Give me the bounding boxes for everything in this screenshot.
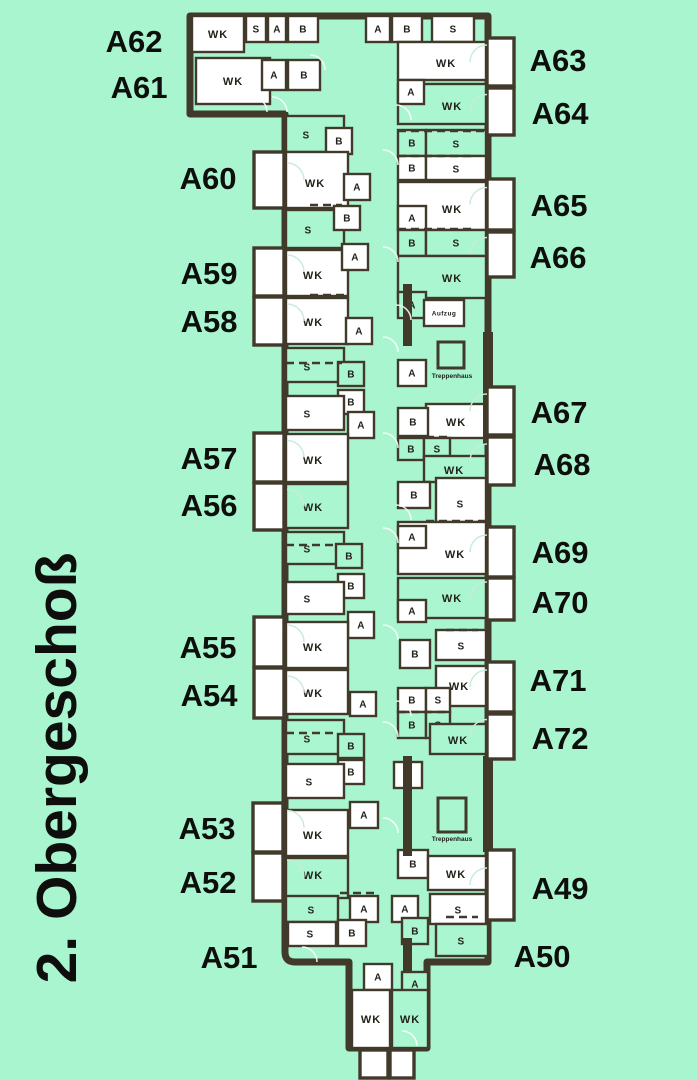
balcony	[254, 152, 284, 208]
apartment-label-a72: A72	[532, 721, 589, 756]
apartment-label-a50: A50	[514, 939, 571, 974]
apartment-label-a71: A71	[530, 663, 587, 698]
room-label-b: B	[347, 768, 355, 779]
balcony	[487, 38, 514, 86]
balcony	[487, 437, 514, 485]
room-label-wk: WK	[442, 204, 462, 216]
room-label-b: B	[410, 491, 418, 502]
apartment-label-a49: A49	[532, 871, 589, 906]
room-label-s: S	[452, 140, 459, 151]
room-s	[286, 348, 344, 382]
room-label-wk: WK	[446, 869, 466, 881]
apartment-label-a57: A57	[181, 441, 238, 476]
apartment-label-a54: A54	[181, 678, 239, 713]
room-label-s: S	[456, 500, 463, 511]
balcony	[253, 853, 283, 901]
room-label-b: B	[347, 370, 355, 381]
apartment-label-a64: A64	[532, 96, 590, 131]
room-label-a: A	[401, 905, 409, 916]
room-label-s: S	[454, 906, 461, 917]
room-label-a: A	[357, 421, 365, 432]
room-label-a: A	[351, 253, 359, 264]
room-label-s: S	[452, 165, 459, 176]
room-s	[286, 582, 344, 614]
room-label-wk: WK	[303, 870, 323, 882]
balcony	[254, 248, 284, 296]
balcony	[487, 232, 514, 277]
room-label-s: S	[457, 937, 464, 948]
room-label-b: B	[409, 860, 417, 871]
room-label-b: B	[300, 71, 308, 82]
room-label-b: B	[408, 721, 416, 732]
balcony	[487, 387, 514, 435]
room-label-s: S	[307, 906, 314, 917]
room-label-wk: WK	[446, 417, 466, 429]
room-label-b: B	[347, 398, 355, 409]
room-label-wk: WK	[303, 642, 323, 654]
room-label-b: B	[403, 25, 411, 36]
apartment-label-a59: A59	[181, 256, 238, 291]
room-label-a: A	[407, 88, 415, 99]
room-label-wk: WK	[303, 830, 323, 842]
room-label-a: A	[374, 25, 382, 36]
room-label-treppenhaus: Treppenhaus	[432, 373, 473, 380]
room-label-s: S	[452, 239, 459, 250]
apartment-label-a58: A58	[181, 304, 238, 339]
room-label-b: B	[411, 927, 419, 938]
floorplan-canvas: WKSABWKABABSWKWKABSBSWKABSWKAAufzugAWKBB…	[0, 0, 697, 1080]
room-label-s: S	[305, 778, 312, 789]
room-label-a: A	[353, 183, 361, 194]
balcony	[390, 1050, 414, 1078]
room-label-a: A	[273, 25, 281, 36]
room-label-a: A	[408, 607, 416, 618]
stairwell-shaft	[438, 342, 464, 368]
room-label-s: S	[304, 226, 311, 237]
room-label-aufzug: Aufzug	[432, 310, 456, 317]
apartment-label-a69: A69	[532, 535, 589, 570]
stairwell-shaft	[438, 798, 466, 832]
balcony	[254, 617, 284, 667]
room-label-s: S	[302, 131, 309, 142]
apartment-label-a56: A56	[181, 488, 238, 523]
balcony	[254, 668, 284, 718]
balcony	[360, 1050, 388, 1078]
wall-segment	[403, 938, 412, 972]
apartment-label-a62: A62	[106, 24, 163, 59]
room-label-b: B	[411, 650, 419, 661]
room-label-wk: WK	[444, 465, 464, 477]
balcony	[253, 803, 283, 852]
room-label-b: B	[345, 552, 353, 563]
room-label-wk: WK	[305, 178, 325, 190]
room-label-b: B	[299, 25, 307, 36]
apartment-label-a65: A65	[531, 188, 588, 223]
room-label-wk: WK	[303, 688, 323, 700]
room-label-b: B	[347, 742, 355, 753]
room-label-s: S	[457, 642, 464, 653]
wall-segment	[483, 756, 493, 852]
room-label-s: S	[306, 930, 313, 941]
room-label-s: S	[303, 363, 310, 374]
balcony	[487, 527, 514, 577]
room-label-a: A	[408, 533, 416, 544]
room-label-s: S	[303, 545, 310, 556]
balcony	[487, 578, 514, 620]
room-label-b: B	[348, 929, 356, 940]
room-label-wk: WK	[303, 317, 323, 329]
wall-segment	[403, 756, 412, 856]
apartment-label-a68: A68	[534, 447, 591, 482]
floor-title: 2. Obergeschoß	[25, 553, 89, 984]
balcony	[254, 483, 284, 530]
room-label-s: S	[303, 735, 310, 746]
room-label-s: S	[303, 410, 310, 421]
room-label-s: S	[449, 25, 456, 36]
room-label-a: A	[355, 327, 363, 338]
apartment-label-a63: A63	[530, 43, 587, 78]
apartment-label-a51: A51	[201, 940, 258, 975]
room-label-a: A	[374, 973, 382, 984]
room-label-wk: WK	[445, 549, 465, 561]
room-label-s: S	[252, 25, 259, 36]
balcony	[254, 433, 284, 482]
room-label-wk: WK	[303, 502, 323, 514]
floorplan-svg: WKSABWKABABSWKWKABSBSWKABSWKAAufzugAWKBB…	[0, 0, 697, 1080]
balcony	[487, 662, 514, 712]
room-label-wk: WK	[361, 1014, 381, 1026]
room-label-b: B	[408, 239, 416, 250]
balcony	[254, 297, 284, 345]
room-label-wk: WK	[400, 1014, 420, 1026]
room-label-treppenhaus: Treppenhaus	[432, 836, 473, 843]
room-label-a: A	[270, 71, 278, 82]
apartment-label-a53: A53	[179, 811, 236, 846]
apartment-label-a66: A66	[530, 240, 587, 275]
room-label-s: S	[434, 696, 441, 707]
room-label-b: B	[335, 137, 343, 148]
room-label-wk: WK	[436, 58, 456, 70]
room-label-wk: WK	[223, 76, 243, 88]
room-label-wk: WK	[208, 29, 228, 41]
room-label-s: S	[433, 445, 440, 456]
balcony	[487, 179, 514, 230]
room-label-a: A	[408, 369, 416, 380]
room-label-b: B	[408, 164, 416, 175]
room-label-a: A	[357, 621, 365, 632]
room-label-b: B	[408, 139, 416, 150]
room-label-wk: WK	[303, 455, 323, 467]
room-label-a: A	[408, 214, 416, 225]
apartment-label-a60: A60	[180, 161, 237, 196]
room-label-wk: WK	[303, 270, 323, 282]
room-label-b: B	[347, 582, 355, 593]
room-label-wk: WK	[442, 593, 462, 605]
room-label-a: A	[359, 700, 367, 711]
room-s	[286, 764, 344, 798]
apartment-label-a70: A70	[532, 585, 589, 620]
room-label-wk: WK	[442, 273, 462, 285]
room-label-wk: WK	[442, 101, 462, 113]
room-label-wk: WK	[448, 735, 468, 747]
apartment-label-a61: A61	[111, 70, 168, 105]
room-label-a: A	[360, 905, 368, 916]
room-label-a: A	[360, 811, 368, 822]
room-label-wk: WK	[449, 681, 469, 693]
room-label-b: B	[343, 214, 351, 225]
apartment-label-a55: A55	[180, 630, 237, 665]
room-label-s: S	[303, 595, 310, 606]
room-s	[286, 720, 344, 754]
balcony	[487, 850, 514, 920]
balcony	[487, 714, 514, 759]
apartment-label-a52: A52	[180, 865, 237, 900]
balcony	[487, 88, 514, 135]
room-label-b: B	[408, 696, 416, 707]
room-label-b: B	[407, 445, 415, 456]
room-s	[286, 396, 344, 430]
apartment-label-a67: A67	[531, 395, 588, 430]
room-label-b: B	[409, 418, 417, 429]
